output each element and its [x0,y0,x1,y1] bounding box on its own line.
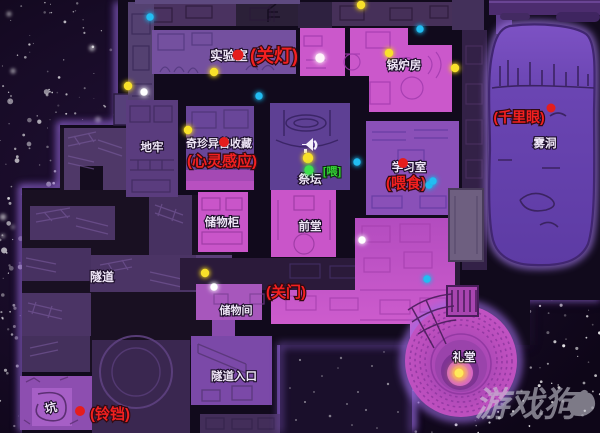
svg-text:游戏狗: 游戏狗 [475,386,582,424]
svg-text:[喂]: [喂] [323,165,342,178]
svg-text:地牢: 地牢 [141,140,164,154]
svg-text:(千里眼): (千里眼) [493,109,544,125]
svg-text:隧道: 隧道 [90,269,114,284]
svg-text:雾洞: 雾洞 [533,136,557,150]
svg-text:学习室: 学习室 [392,160,427,174]
svg-text:(关门): (关门) [266,283,306,301]
svg-text:前堂: 前堂 [299,219,322,233]
svg-text:(喂食): (喂食) [386,174,426,192]
svg-text:锅炉房: 锅炉房 [387,58,422,72]
svg-text:(心灵感应): (心灵感应) [187,152,257,170]
svg-text:礼堂: 礼堂 [453,350,476,364]
svg-text:储物间: 储物间 [220,303,253,317]
svg-text:(关灯): (关灯) [250,45,298,66]
svg-text:隧道入口: 隧道入口 [211,369,257,383]
svg-text:(铃铛): (铃铛) [90,405,130,423]
svg-text:奇珍异兽收藏: 奇珍异兽收藏 [186,136,252,150]
svg-text:储物柜: 储物柜 [205,215,240,229]
